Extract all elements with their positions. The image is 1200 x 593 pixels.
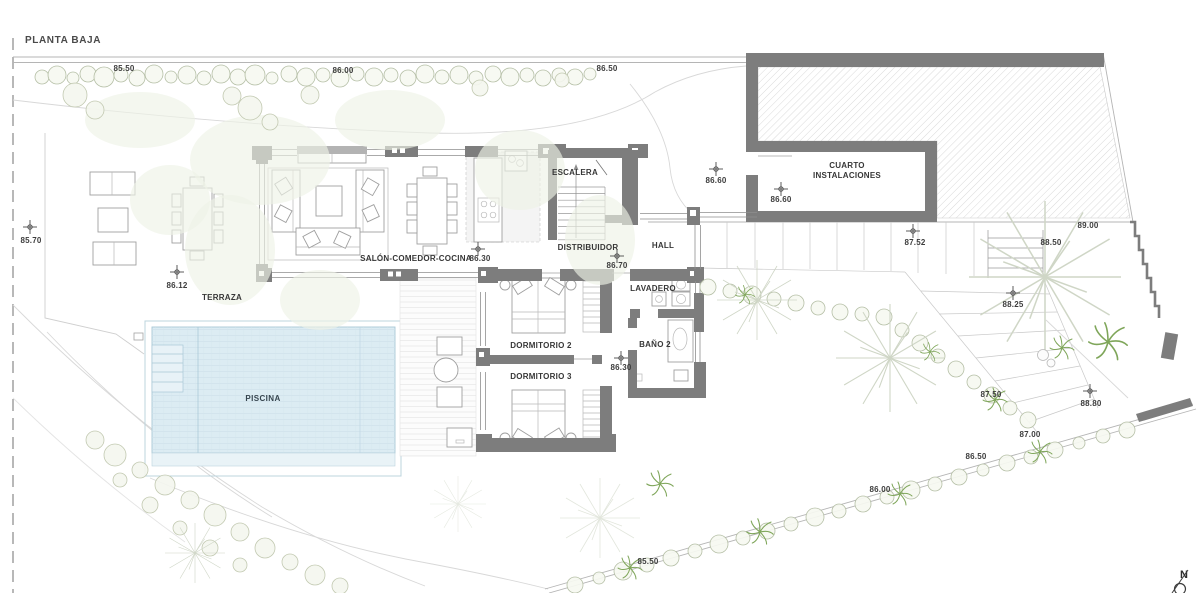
level-top-8650: 86.50 [596, 64, 617, 73]
bathroom-vanity [668, 320, 693, 362]
label-terraza: TERRAZA [202, 293, 242, 302]
level-left-8570: 85.70 [20, 236, 41, 245]
nightstand [566, 280, 576, 290]
level-cuarto-8660: 86.60 [770, 195, 791, 204]
terrace-table [98, 208, 128, 232]
label-lavadero: LAVADERO [630, 284, 676, 293]
level-path-8752: 87.52 [904, 238, 925, 247]
palm-tree [430, 476, 486, 532]
pool-label: PISCINA [245, 394, 280, 403]
cuarto-instalaciones-walls [746, 141, 937, 222]
label-bano2: BAÑO 2 [639, 340, 671, 349]
retaining-wall-north [746, 53, 1104, 67]
palm-tree [560, 478, 640, 558]
level-bound-8600: 86.00 [869, 485, 890, 494]
level-marker [170, 265, 184, 279]
label-salon: SALÓN-COMEDOR-COCINA [360, 254, 472, 263]
level-marker [1083, 384, 1097, 398]
level-garden-8880: 88.80 [1080, 399, 1101, 408]
level-distribuidor-8670: 86.70 [606, 261, 627, 270]
level-salon-8630: 86.30 [469, 254, 490, 263]
coffee-table [316, 186, 342, 216]
level-marker [23, 220, 37, 234]
label-cuarto-instalaciones: CUARTOINSTALACIONES [813, 161, 881, 180]
terrace-sofa-2 [93, 242, 136, 265]
palm-tree [836, 304, 944, 412]
level-steps-8850: 88.50 [1040, 238, 1061, 247]
deck-chair-1 [437, 337, 462, 355]
hedge-path [700, 279, 1036, 428]
level-bound-8550: 85.50 [637, 557, 658, 566]
dining-table [417, 178, 447, 244]
laundry-bath-fixtures [634, 278, 693, 381]
level-top-8600: 86.00 [332, 66, 353, 75]
level-garden-8750: 87.50 [980, 390, 1001, 399]
stepped-boundary-wall [1130, 222, 1159, 318]
pool-shelf [152, 453, 395, 466]
compass-circle [1175, 584, 1186, 593]
level-marker [709, 162, 723, 176]
pool-steps [152, 345, 183, 392]
page-title: PLANTA BAJA [25, 35, 101, 46]
laundry-sink [652, 292, 666, 306]
nightstand [500, 280, 510, 290]
toilet [674, 370, 688, 381]
deck-table [434, 358, 458, 382]
label-dormitorio2: DORMITORIO 2 [510, 341, 572, 350]
label-dormitorio3: DORMITORIO 3 [510, 372, 572, 381]
deck [400, 278, 476, 456]
label-distribuidor: DISTRIBUIDOR [558, 243, 619, 252]
level-drive-8900: 89.00 [1077, 221, 1098, 230]
deck-chair-2 [437, 387, 462, 407]
level-garden-8825: 88.25 [1002, 300, 1023, 309]
palm-tree [717, 260, 797, 340]
level-marker [774, 182, 788, 196]
level-terraza-8612: 86.12 [166, 281, 187, 290]
north-arrow: N [1172, 569, 1188, 593]
label-escalera: ESCALERA [552, 168, 598, 177]
level-bound-8650: 86.50 [965, 452, 986, 461]
outdoor-unit [447, 428, 472, 447]
level-top-8550: 85.50 [113, 64, 134, 73]
level-bound-8700: 87.00 [1019, 430, 1040, 439]
level-dorm-8630: 86.30 [610, 363, 631, 372]
pool: PISCINA [145, 321, 401, 476]
terrace-sofa-1 [90, 172, 135, 195]
floor-plan: PISCINA [0, 0, 1200, 593]
level-patio-8660: 86.60 [705, 176, 726, 185]
label-hall: HALL [652, 241, 674, 250]
